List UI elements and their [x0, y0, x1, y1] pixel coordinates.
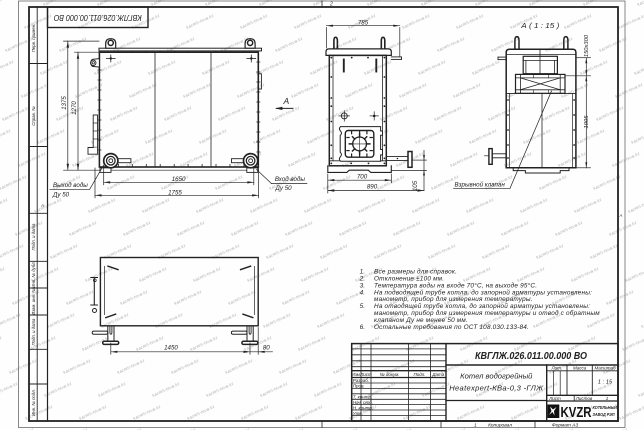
svg-text:Копировал: Копировал — [488, 422, 512, 428]
svg-text:КОТЕЛЬНЫЙ: КОТЕЛЬНЫЙ — [593, 405, 618, 410]
svg-text:ЗАВОД РЭП: ЗАВОД РЭП — [593, 412, 616, 417]
svg-text:Подп. и дата: Подп. и дата — [31, 223, 36, 251]
svg-text:Лист: Лист — [359, 372, 372, 377]
svg-text:КВГЛЖ.026.011.00.000 ВО: КВГЛЖ.026.011.00.000 ВО — [475, 351, 587, 362]
svg-text:KVZR: KVZR — [561, 405, 592, 421]
svg-text:6.: 6. — [360, 324, 365, 331]
svg-text:А: А — [40, 203, 44, 208]
svg-text:Лит.: Лит. — [551, 365, 563, 370]
svg-text:Вход воды: Вход воды — [275, 176, 305, 183]
svg-text:Heatexpert-КВа-0,3 -ГЛЖ: Heatexpert-КВа-0,3 -ГЛЖ — [449, 384, 544, 393]
svg-text:785: 785 — [358, 19, 369, 26]
svg-text:Листов: Листов — [575, 396, 593, 401]
svg-text:А: А — [619, 213, 623, 218]
svg-text:Все размеры для справок.: Все размеры для справок. — [374, 268, 457, 276]
svg-text:Температура воды на входе 70°С: Температура воды на входе 70°С, на выход… — [374, 281, 537, 289]
svg-text:Лист: Лист — [548, 396, 561, 401]
svg-text:Взрывной клапан: Взрывной клапан — [455, 181, 506, 188]
svg-text:1 : 15: 1 : 15 — [598, 380, 613, 386]
svg-text:1650: 1650 — [172, 176, 186, 183]
svg-text:Масштаб: Масштаб — [594, 365, 615, 370]
svg-text:Нач. отд.: Нач. отд. — [353, 400, 373, 405]
svg-text:Формат А3: Формат А3 — [552, 422, 579, 428]
svg-text:4.: 4. — [360, 289, 365, 296]
svg-text:105: 105 — [412, 180, 419, 191]
svg-text:1375: 1375 — [61, 96, 68, 110]
svg-text:700: 700 — [357, 173, 368, 180]
svg-text:Разраб.: Разраб. — [353, 378, 369, 383]
svg-text:На отводящей трубе котла, до з: На отводящей трубе котла, до запорной ар… — [374, 302, 590, 310]
svg-text:2: 2 — [329, 2, 333, 8]
svg-text:Т. контр.: Т. контр. — [353, 394, 372, 399]
svg-text:Инв. № дубл.: Инв. № дубл. — [31, 261, 36, 287]
svg-text:Взам. инв. №: Взам. инв. № — [31, 288, 36, 315]
svg-text:1: 1 — [474, 422, 477, 428]
svg-text:1005: 1005 — [584, 115, 590, 129]
svg-text:150х300: 150х300 — [584, 34, 590, 57]
svg-text:Подп.: Подп. — [414, 372, 426, 377]
svg-text:Котел водогрейный: Котел водогрейный — [460, 372, 533, 381]
svg-text:1450: 1450 — [164, 345, 178, 352]
svg-text:А ( 1 : 15 ): А ( 1 : 15 ) — [520, 21, 560, 30]
svg-text:Остальные требования по ОСТ 10: Остальные требования по ОСТ 108.030.133-… — [374, 323, 529, 331]
svg-text:Утв.: Утв. — [353, 411, 363, 416]
svg-text:Пров.: Пров. — [353, 384, 365, 389]
svg-text:Н. контр.: Н. контр. — [353, 405, 373, 410]
svg-text:5.: 5. — [360, 303, 365, 310]
svg-text:Справ. №: Справ. № — [31, 106, 36, 126]
svg-text:80: 80 — [263, 345, 270, 352]
svg-text:КВГЛЖ.026.011.00.000 ВО: КВГЛЖ.026.011.00.000 ВО — [54, 13, 142, 22]
svg-text:манометр, прибор для измерения: манометр, прибор для измерения температу… — [374, 309, 600, 317]
svg-text:1755: 1755 — [168, 190, 182, 197]
svg-text:890: 890 — [367, 184, 378, 191]
svg-text:На подводящей трубе котла, до: На подводящей трубе котла, до запорной а… — [374, 288, 592, 296]
svg-text:Выход воды: Выход воды — [53, 182, 88, 189]
svg-text:А: А — [283, 96, 290, 106]
svg-text:Масса: Масса — [573, 365, 587, 370]
svg-text:1270: 1270 — [71, 101, 78, 115]
svg-text:Инв. № подл.: Инв. № подл. — [31, 389, 36, 416]
svg-text:Дата: Дата — [431, 372, 444, 377]
svg-text:№ докум.: № докум. — [380, 372, 400, 377]
svg-text:манометр, прибор для измерения: манометр, прибор для измерения температу… — [374, 295, 533, 303]
svg-text:Подп. и дата: Подп. и дата — [31, 318, 36, 346]
svg-text:Ду 50: Ду 50 — [275, 185, 293, 192]
svg-text:Перв. примен.: Перв. примен. — [31, 24, 36, 53]
svg-text:Ду 50: Ду 50 — [52, 192, 70, 199]
